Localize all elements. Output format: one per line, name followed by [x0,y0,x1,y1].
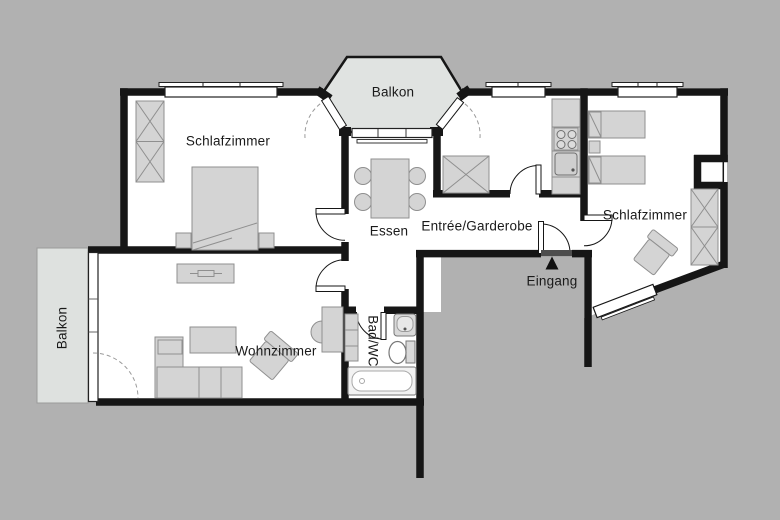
bathtub-icon [348,367,416,395]
label-dining: Essen [370,224,409,239]
window-bedroom-left [159,83,283,98]
wardrobe-bedroom-right [691,189,718,265]
label-bedroom-left: Schlafzimmer [186,134,270,149]
window-kitchen [486,83,551,98]
label-entry-hall: Entrée/Garderobe [421,219,532,234]
sideboard [177,264,234,283]
dining-table [371,159,409,218]
kitchen-counter [552,99,580,194]
label-bathroom: Bad/WC [366,315,381,366]
entrance-threshold [541,250,572,257]
single-bed-2 [588,156,645,184]
floorplan-drawing [0,0,780,520]
nightstand-left-2 [259,233,274,248]
window-bedroom-right [612,83,683,98]
stove-icon [554,128,578,150]
coffee-table [190,327,236,353]
nightstand-left-1 [176,233,191,248]
bath-cabinet [345,314,358,361]
bath-sink-icon [394,314,416,336]
window-living-west [89,253,99,402]
label-living-room: Wohnzimmer [235,344,316,359]
single-bed-1 [588,111,645,138]
label-balcony-top: Balkon [372,85,414,100]
label-entrance: Eingang [527,274,578,289]
floorplan: Balkon Schlafzimmer Schlafzimmer Essen E… [0,0,780,520]
toilet-icon [389,341,415,364]
wardrobe-bedroom-left [136,101,164,182]
label-bedroom-right: Schlafzimmer [603,208,687,223]
label-balcony-left: Balkon [55,307,70,349]
nightstand-right [589,141,600,153]
double-bed [192,167,258,250]
sink-icon [555,153,577,175]
wardrobe-entree [443,156,489,193]
window-balcony-hex [352,129,432,144]
